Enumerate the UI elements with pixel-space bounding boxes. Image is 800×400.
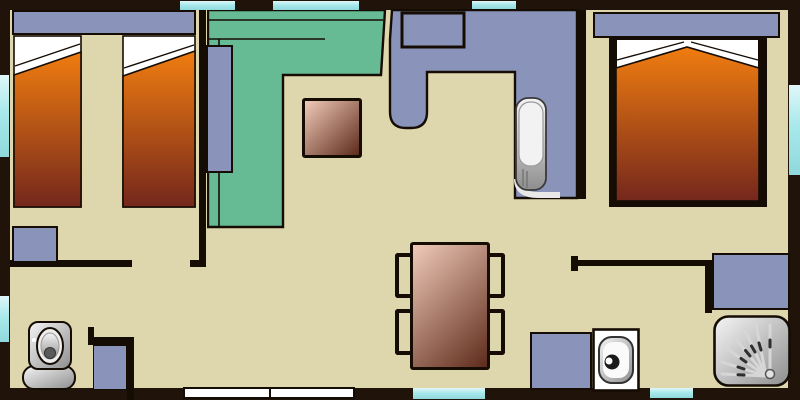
- headboard-shelf-left: [12, 10, 196, 35]
- window-top-2: [273, 1, 359, 10]
- kitchen-counter: [386, 9, 586, 200]
- entry-door: [183, 387, 355, 399]
- window-left-1: [0, 75, 9, 157]
- cabinet-wc: [93, 345, 127, 390]
- wall-bedroom-right-horizontal: [573, 260, 712, 266]
- toilet-icon: [20, 318, 78, 392]
- bed-frame-bottom: [609, 202, 767, 207]
- shower-icon: [713, 315, 791, 387]
- window-top-3: [472, 1, 516, 9]
- chair-4: [490, 309, 505, 355]
- chair-3: [490, 253, 505, 298]
- washbasin-icon: [592, 328, 640, 392]
- sofa-side-cabinet: [206, 45, 233, 173]
- window-right-1: [789, 85, 800, 175]
- chair-2: [395, 309, 410, 355]
- wall-bedroom-left-vertical: [199, 10, 206, 267]
- cabinet-bathroom-mid: [530, 332, 592, 390]
- floor-plan: [0, 0, 800, 400]
- bed-frame-right: [760, 36, 767, 207]
- wall-bathroom-vertical: [705, 260, 712, 313]
- coffee-table: [302, 98, 362, 158]
- single-bed-2: [122, 35, 196, 208]
- cabinet-bedroom-left: [12, 226, 58, 263]
- headboard-shelf-right: [593, 12, 780, 38]
- window-top-1: [180, 1, 235, 10]
- wall-wc-vertical: [127, 337, 134, 400]
- double-bed: [615, 38, 760, 202]
- door-leaf-divider: [269, 389, 271, 397]
- cabinet-bathroom-right: [712, 253, 790, 310]
- single-bed-1: [13, 35, 82, 208]
- window-left-2: [0, 296, 9, 342]
- wall-stub-bedroom-left: [190, 260, 206, 267]
- window-bottom-2: [650, 388, 693, 398]
- window-bottom-1: [413, 388, 485, 399]
- dining-table: [410, 242, 490, 370]
- chair-1: [395, 253, 410, 298]
